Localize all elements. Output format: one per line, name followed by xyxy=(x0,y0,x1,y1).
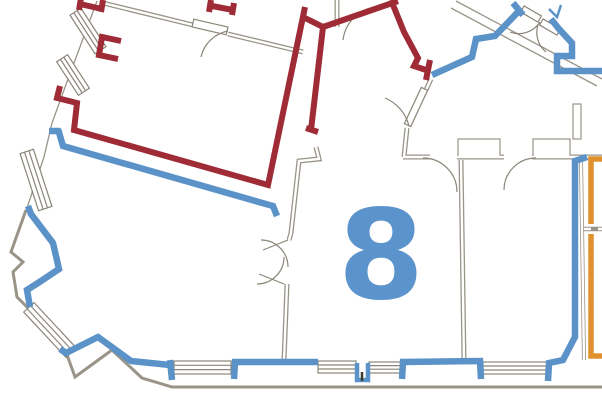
interior-wall-room8-left xyxy=(284,147,319,361)
door-swing-arc xyxy=(257,257,284,284)
entry-mark-icon xyxy=(549,5,561,17)
window-icon xyxy=(318,361,356,373)
orange-unit-outline[interactable] xyxy=(591,159,602,356)
window-icon xyxy=(174,361,231,374)
red-window-cap xyxy=(99,37,121,59)
window-icon xyxy=(20,149,52,210)
door-leaf-line xyxy=(263,240,288,250)
floor-plan-canvas: 8 xyxy=(0,0,602,400)
blue-wall xyxy=(402,361,481,379)
floor-plan-viewport: 8 xyxy=(0,0,602,400)
blue-wall xyxy=(49,129,277,216)
wall-shaft-box xyxy=(533,139,570,157)
window-icon xyxy=(483,362,547,374)
wall-shaft-box xyxy=(458,139,500,157)
blue-wall xyxy=(234,362,318,379)
blue-wall xyxy=(27,206,59,307)
red-window-cap xyxy=(209,0,234,15)
unit-8-label[interactable]: 8 xyxy=(338,184,424,328)
red-wall xyxy=(323,1,398,27)
door-leaf-line xyxy=(259,274,284,284)
window-icon xyxy=(369,362,401,373)
door-swing-arc xyxy=(504,158,536,190)
wall-stub-box xyxy=(573,104,581,139)
thin-symbols xyxy=(20,6,560,374)
door-swing-arc xyxy=(423,158,457,192)
orange-wall xyxy=(591,159,602,356)
red-wall xyxy=(303,17,323,132)
blue-wall xyxy=(60,337,172,380)
blue-wall xyxy=(551,19,602,71)
red-wall xyxy=(391,0,430,80)
